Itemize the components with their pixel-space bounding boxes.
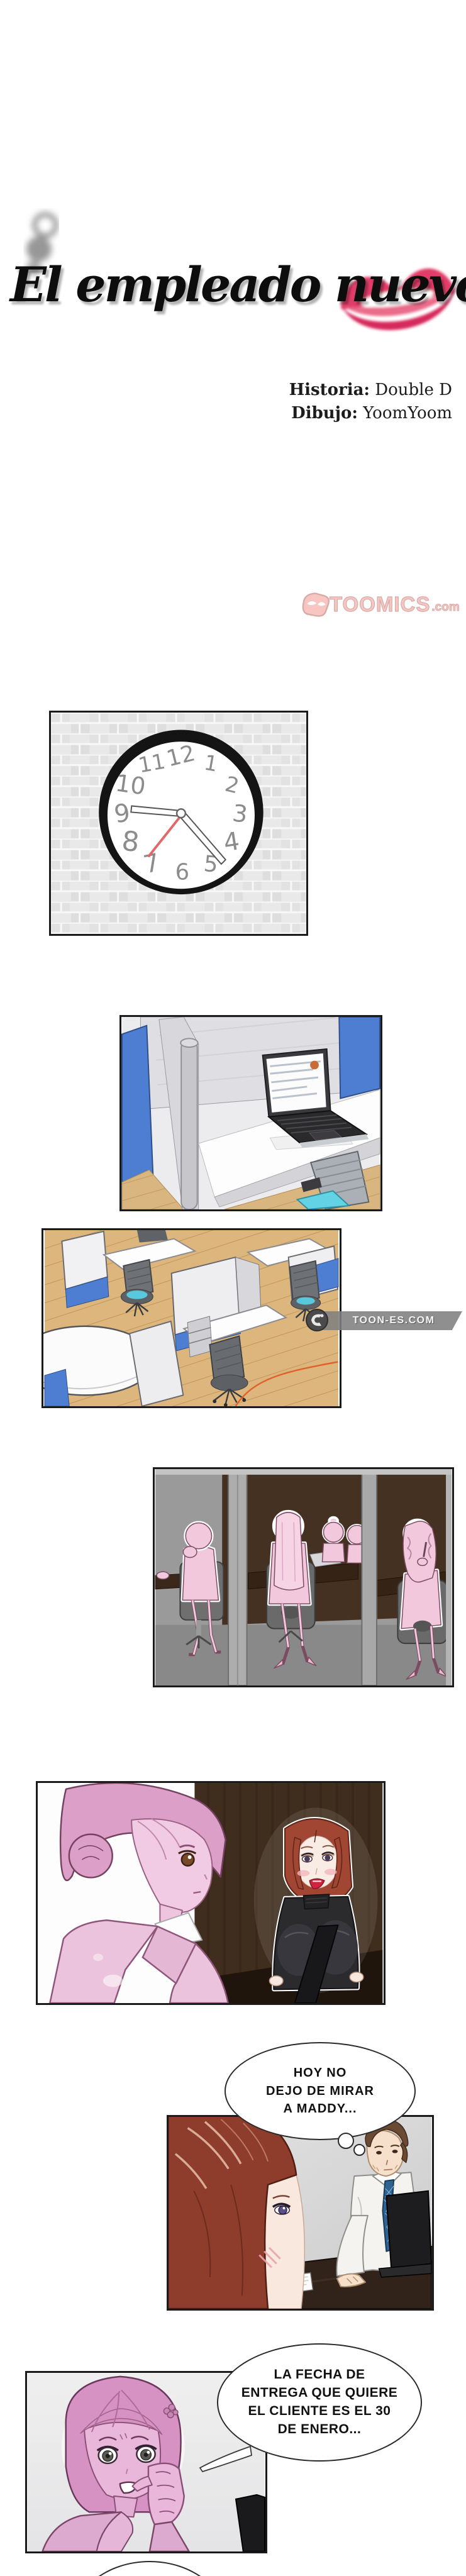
red-haired-woman-foreground xyxy=(169,2117,304,2309)
logo-brand-text: TOOMICS xyxy=(330,592,430,616)
panel-man-at-desk xyxy=(167,2115,434,2311)
watermark-text: TOON-ES.COM xyxy=(344,1315,435,1326)
thought-bubble-text: HOY NO DEJO DE MIRAR A MADDY... xyxy=(266,2064,374,2118)
laptop xyxy=(386,2191,431,2269)
page-title: El empleado nuevo xyxy=(10,257,460,313)
wall-clock: 12 1 2 3 4 5 6 7 8 9 10 11 xyxy=(99,730,264,895)
panel-office-overview xyxy=(42,1228,341,1408)
cubicle-blue-panel xyxy=(339,1017,380,1098)
thought-bubble-circle xyxy=(353,2144,365,2156)
webtoon-page: El empleado nuevo Historia: Double D Dib… xyxy=(0,0,466,2576)
panel-two-women xyxy=(36,1781,386,2005)
speech-bubble-tail xyxy=(196,2444,254,2474)
panel-meeting-room xyxy=(153,1467,454,1687)
clock-number: 8 xyxy=(120,826,141,859)
partition-post xyxy=(181,1040,197,1209)
credits: Historia: Double D Dibujo: YoomYoom xyxy=(289,379,452,425)
credit-story: Historia: Double D xyxy=(289,379,452,402)
watermark-logo-icon xyxy=(305,1308,329,1332)
clock-number: 11 xyxy=(136,749,167,778)
thought-bubble-maddy: HOY NO DEJO DE MIRAR A MADDY... xyxy=(225,2042,416,2140)
clock-number: 6 xyxy=(175,860,190,885)
red-haired-woman xyxy=(254,1807,378,2003)
panel-cubicle-laptop xyxy=(119,1015,382,1211)
thought-bubble-circle xyxy=(338,2133,354,2149)
toomics-logo: TOOMICS.com xyxy=(301,586,462,623)
logo-tld-text: .com xyxy=(431,601,459,614)
toomics-mask-icon xyxy=(301,591,330,618)
panel-clock: 12 1 2 3 4 5 6 7 8 9 10 11 xyxy=(49,711,308,936)
speech-bubble-text: LA FECHA DE ENTREGA QUE QUIERE EL CLIENT… xyxy=(241,2366,398,2439)
watermark-banner: TOON-ES.COM xyxy=(316,1311,462,1330)
hair-bun xyxy=(69,1835,113,1878)
glass-mullion xyxy=(362,1469,377,1685)
speech-bubble-partial xyxy=(70,2561,229,2576)
credit-art: Dibujo: YoomYoom xyxy=(289,402,452,425)
